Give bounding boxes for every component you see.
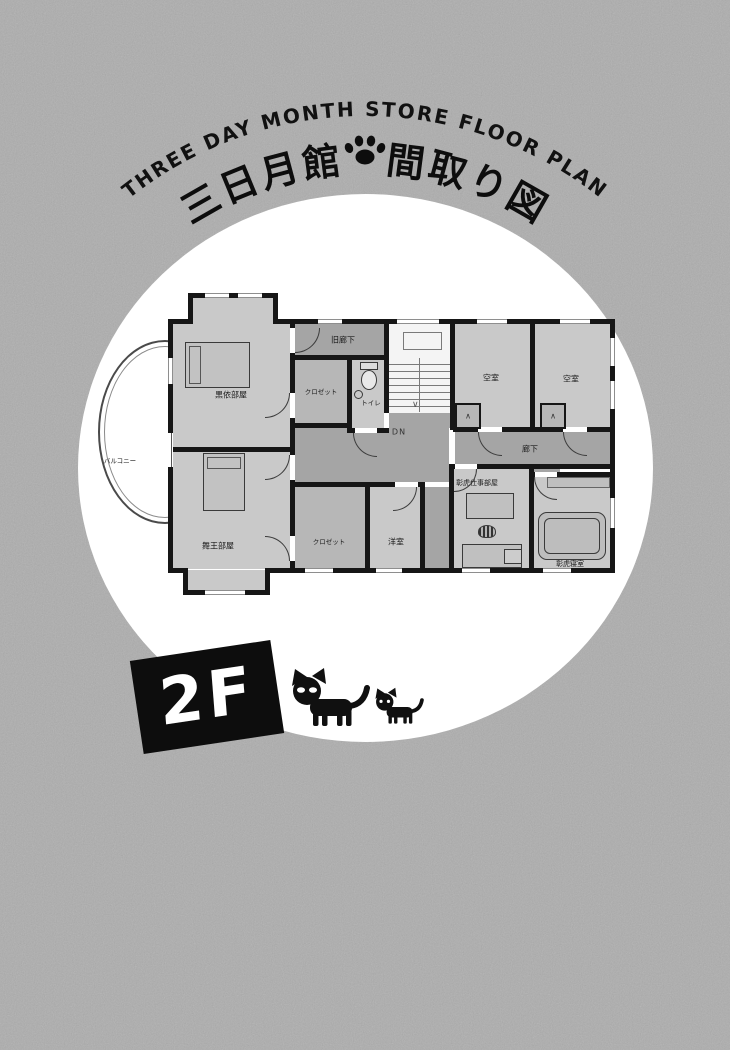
- door-gap: [290, 455, 295, 480]
- window: [376, 568, 402, 573]
- window: [205, 293, 229, 298]
- window: [238, 293, 262, 298]
- label-hallway: 廊下: [522, 444, 538, 455]
- folding-door-mark: ∧: [465, 412, 471, 421]
- label-old-corridor: 旧廊下: [331, 335, 355, 346]
- label-closet-upper: クロゼット: [305, 386, 338, 396]
- hall-south-strip: [425, 487, 449, 568]
- folding-door-mark: ∧: [550, 412, 556, 421]
- label-kuroi-room: 黒依部屋: [215, 390, 247, 401]
- manga-page: { "colors": { "background": "#ADADAD", "…: [0, 0, 730, 1050]
- wall-segment: [529, 467, 534, 573]
- wall-segment: [168, 447, 295, 452]
- window: [305, 568, 333, 573]
- work-cabinet-icon: [504, 549, 522, 564]
- wall-segment: [293, 355, 389, 360]
- wall-segment: [420, 482, 425, 573]
- bed-kuroi: [185, 342, 250, 388]
- wall-segment: [365, 482, 370, 573]
- window: [397, 319, 439, 324]
- header-arc: THREE DAY MONTH STORE FLOOR PLAN 三日月館 間取…: [0, 0, 730, 280]
- label-vacant-1: 空室: [483, 373, 499, 384]
- wall-segment: [347, 358, 352, 430]
- stairs-down-arrow-icon: ∨: [412, 400, 419, 410]
- window: [477, 319, 507, 324]
- door-gap: [290, 393, 295, 418]
- label-closet-lower: クロゼット: [313, 536, 346, 546]
- stairs-divider: [419, 358, 420, 412]
- bed-akitora: [538, 512, 606, 560]
- label-western-room: 洋室: [388, 537, 404, 548]
- bed-mattress: [544, 518, 600, 554]
- room-kuroi-upper: [193, 298, 273, 324]
- sliding-closet-bedroom: [547, 477, 610, 488]
- room-mao-protrusion: [188, 570, 265, 591]
- window: [168, 358, 173, 384]
- floor-badge-label: 2F: [156, 653, 257, 741]
- toilet-bowl-icon: [361, 370, 377, 390]
- room-closet-lower: [295, 487, 365, 568]
- stairwell: ∨: [389, 324, 450, 413]
- hall-under-stairs: [389, 413, 450, 428]
- bed-pillow: [189, 346, 201, 384]
- cat-illustrations: [280, 662, 430, 737]
- window: [318, 319, 342, 324]
- wall-segment: [168, 568, 188, 573]
- door-gap: [290, 536, 295, 561]
- window: [610, 338, 615, 366]
- wall-segment: [530, 319, 535, 430]
- label-balcony: バルコニー: [104, 455, 136, 465]
- label-vacant-2: 空室: [563, 374, 579, 385]
- black-cat-large-icon: [292, 668, 367, 726]
- bed-mao: [203, 453, 245, 511]
- toilet-tank-icon: [360, 362, 378, 370]
- window: [610, 498, 615, 528]
- label-akitora-bedroom: 彰虎寝室: [556, 559, 584, 569]
- label-mao-room: 舞王部屋: [202, 541, 234, 552]
- window: [205, 590, 245, 595]
- bed-pillow: [207, 457, 241, 469]
- window: [560, 319, 590, 324]
- wall-segment: [293, 423, 352, 428]
- paw-print-icon: [343, 135, 387, 164]
- window: [610, 381, 615, 409]
- floor-plan: ∨ ∧ ∧ 黒依部屋 舞王部屋 バルコニー 旧廊下 クロゼット トイレ DN 空…: [110, 283, 625, 598]
- desk-icon: [466, 493, 514, 519]
- label-toilet: トイレ: [361, 397, 381, 407]
- black-cat-small-icon: [375, 688, 422, 724]
- window: [462, 568, 490, 573]
- chair-icon: [478, 525, 496, 538]
- label-stairs-dn: DN: [392, 428, 406, 437]
- wall-segment: [384, 319, 389, 413]
- stairs-landing: [403, 332, 442, 350]
- label-akitora-workroom: 彰虎仕事部屋: [456, 478, 498, 488]
- wall-segment: [188, 293, 278, 298]
- balcony-door-leaf: [171, 433, 172, 467]
